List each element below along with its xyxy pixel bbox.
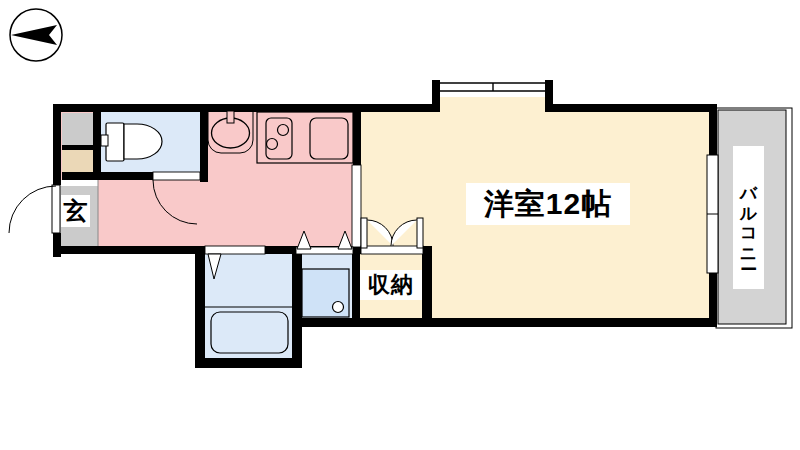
genkan-step bbox=[60, 180, 98, 186]
floorplan-drawing bbox=[0, 0, 800, 450]
compass-icon bbox=[10, 9, 62, 61]
main-room-label: 洋室12帖 bbox=[466, 183, 630, 225]
balcony-sliding-window bbox=[707, 155, 718, 273]
entrance-label: 玄 bbox=[61, 195, 90, 227]
balcony-label: バルコニー bbox=[733, 146, 764, 289]
storage-label: 収納 bbox=[360, 270, 422, 300]
washing-machine-pan bbox=[302, 269, 349, 317]
alcove-window bbox=[440, 80, 545, 97]
utility-box-gray bbox=[62, 113, 93, 146]
kitchen-room-sliding-door bbox=[352, 165, 361, 247]
utility-box-tan bbox=[62, 150, 93, 173]
floorplan-canvas: 玄 洋室12帖 収納 バルコニー bbox=[0, 0, 800, 450]
window-alcove-floor bbox=[440, 95, 545, 112]
entrance-door bbox=[9, 185, 60, 233]
bathtub-fixture bbox=[203, 307, 292, 353]
toilet-fixture bbox=[101, 123, 162, 161]
